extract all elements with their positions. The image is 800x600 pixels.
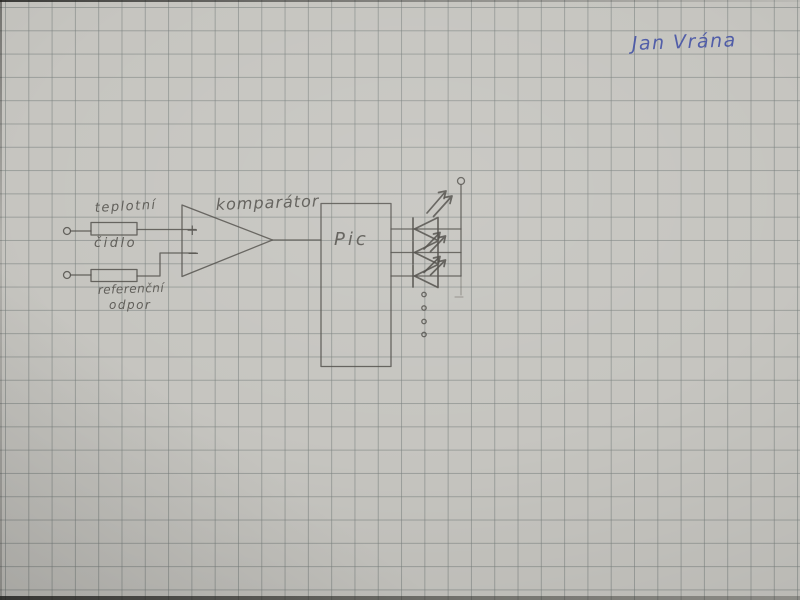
reference-resistor-symbol [71,253,197,282]
more-leds-ellipsis-dots [422,292,426,336]
input-terminal-bottom-icon [64,272,71,279]
mcu-box [321,204,391,367]
led-symbol-1 [413,191,452,241]
comparator-minus-input-label: − [187,244,200,262]
comparator-opamp-symbol [182,205,321,277]
comparator-label: komparátor [215,191,320,214]
temperature-sensor-label-line1: teplotní [94,198,157,216]
reference-resistor-label-line1: referenční [98,281,166,297]
temperature-sensor-resistor-symbol [71,223,197,236]
led-common-bus [455,178,465,298]
comparator-plus-input-label: + [186,221,199,239]
led-symbol-2 [413,233,446,265]
mcu-label: Pic [334,229,369,250]
input-terminal-top-icon [64,228,71,235]
led-row-wires [391,229,461,276]
output-terminal-icon [458,178,465,185]
signature-text: Jan Vrána [627,29,737,55]
photo-of-hand-drawn-schematic: teplotní čidlo referenční odpor komparát… [0,0,800,600]
schematic-drawing: teplotní čidlo referenční odpor komparát… [0,0,800,600]
temperature-sensor-label-line2: čidlo [94,236,137,251]
led-symbol-3 [413,257,446,288]
reference-resistor-label-line2: odpor [109,298,151,312]
led-emission-arrows-1 [427,191,452,217]
